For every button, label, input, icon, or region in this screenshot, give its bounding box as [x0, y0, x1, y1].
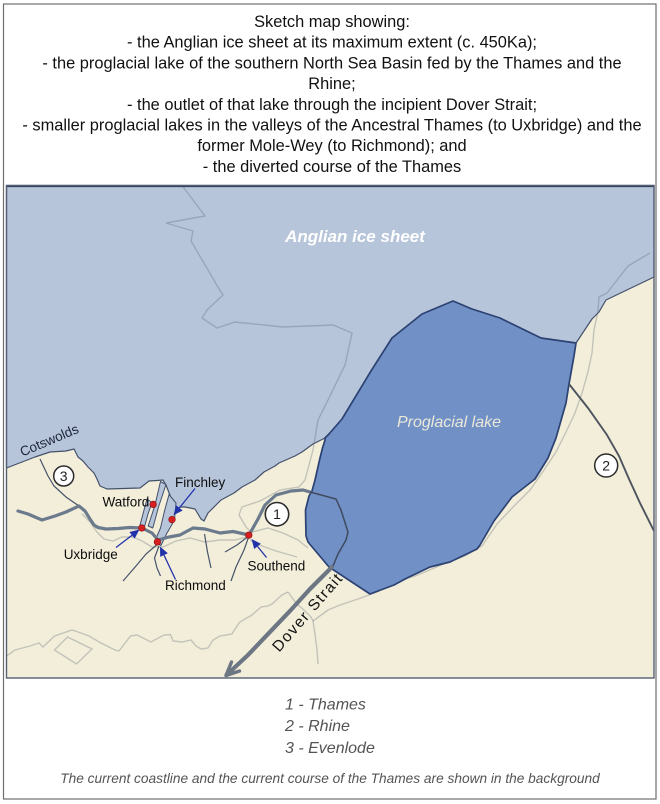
svg-text:Proglacial lake: Proglacial lake [397, 414, 501, 431]
svg-text:1: 1 [273, 506, 281, 522]
svg-text:Uxbridge: Uxbridge [64, 547, 118, 562]
svg-text:3 - Evenlode: 3 - Evenlode [285, 740, 375, 757]
svg-text:Anglian ice sheet: Anglian ice sheet [284, 227, 426, 246]
svg-text:Finchley: Finchley [175, 475, 226, 490]
svg-text:Sketch map showing:: Sketch map showing: [254, 13, 410, 31]
svg-text:- smaller proglacial lakes in: - smaller proglacial lakes in the valley… [22, 117, 641, 135]
svg-text:1 - Thames: 1 - Thames [285, 697, 366, 714]
svg-text:2 - Rhine: 2 - Rhine [284, 718, 350, 735]
svg-text:- the outlet of that lake thro: - the outlet of that lake through the in… [127, 96, 537, 114]
svg-text:Southend: Southend [248, 559, 306, 574]
svg-text:- the proglacial lake of the s: - the proglacial lake of the southern No… [42, 54, 621, 72]
svg-text:Watford: Watford [103, 495, 150, 510]
svg-text:The current coastline and the: The current coastline and the current co… [60, 771, 600, 786]
svg-text:- the diverted course of the T: - the diverted course of the Thames [203, 158, 461, 176]
svg-text:former Mole-Wey (to Richmond);: former Mole-Wey (to Richmond); and [197, 137, 466, 155]
svg-text:3: 3 [60, 468, 68, 484]
svg-text:- the Anglian ice sheet at its: - the Anglian ice sheet at its maximum e… [127, 34, 537, 52]
svg-text:Richmond: Richmond [165, 578, 226, 593]
svg-text:Rhine;: Rhine; [308, 75, 355, 93]
svg-text:2: 2 [602, 458, 610, 474]
